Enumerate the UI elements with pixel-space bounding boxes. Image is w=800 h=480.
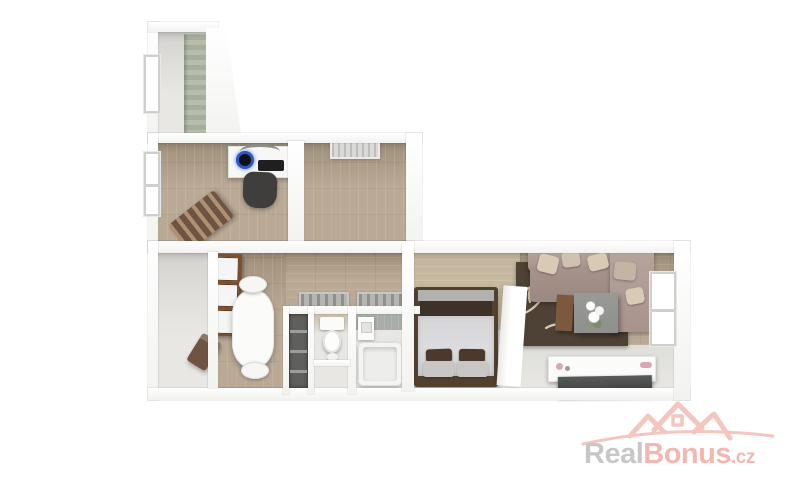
window-bar	[652, 309, 674, 312]
wc-lower-floor	[314, 366, 348, 388]
wall	[208, 252, 218, 388]
toilet	[323, 330, 341, 353]
wall	[674, 241, 690, 400]
window	[650, 272, 676, 346]
office-chair	[242, 171, 277, 208]
window	[144, 55, 160, 113]
dining-chair	[239, 276, 267, 293]
toilet-tank	[320, 317, 344, 330]
logo-text-real: Real	[584, 438, 643, 470]
side-table	[555, 295, 574, 332]
wall	[148, 241, 690, 253]
deco-item	[565, 366, 570, 371]
keyboard	[258, 160, 284, 171]
wall	[283, 306, 289, 394]
wall	[308, 306, 314, 394]
logo-text-bonus: Bonus	[643, 438, 731, 470]
bed-top-band	[418, 290, 494, 301]
sink-basin	[361, 322, 372, 333]
roof-window	[673, 416, 682, 425]
computer	[236, 151, 254, 169]
bathroom-sink	[358, 317, 374, 340]
roof-right	[694, 414, 730, 438]
deco-item	[556, 363, 563, 370]
tiled-strip	[184, 34, 208, 135]
window-bar	[146, 184, 158, 187]
throw-pillow	[613, 261, 637, 281]
realbonus-watermark: RealBonus.cz	[584, 438, 755, 471]
bathtub	[358, 342, 402, 386]
logo-text-cz: .cz	[731, 447, 755, 468]
floor-plan-render: RealBonus.cz	[0, 0, 800, 480]
closet-shelf	[290, 330, 307, 333]
wall	[206, 28, 242, 140]
bed-pillow-light	[457, 361, 488, 377]
wall	[288, 141, 304, 245]
bed-pillow-light	[423, 361, 454, 377]
wall	[406, 133, 422, 252]
closet-shelf	[290, 370, 307, 373]
bathtub-inner	[363, 347, 397, 381]
bed-headboard-panel	[420, 301, 492, 316]
closet-niche	[289, 314, 308, 388]
flower-vase	[584, 298, 606, 330]
dining-chair	[241, 362, 269, 379]
deco-item	[640, 362, 652, 368]
throw-pillow	[625, 287, 646, 306]
wall	[148, 133, 422, 143]
closet-shelf	[290, 350, 307, 353]
wall	[314, 360, 350, 366]
window-pane	[216, 257, 239, 281]
oval-dining-table	[232, 289, 274, 369]
window	[144, 152, 160, 216]
wall	[148, 241, 158, 400]
wall	[348, 306, 356, 394]
wall	[402, 241, 414, 391]
